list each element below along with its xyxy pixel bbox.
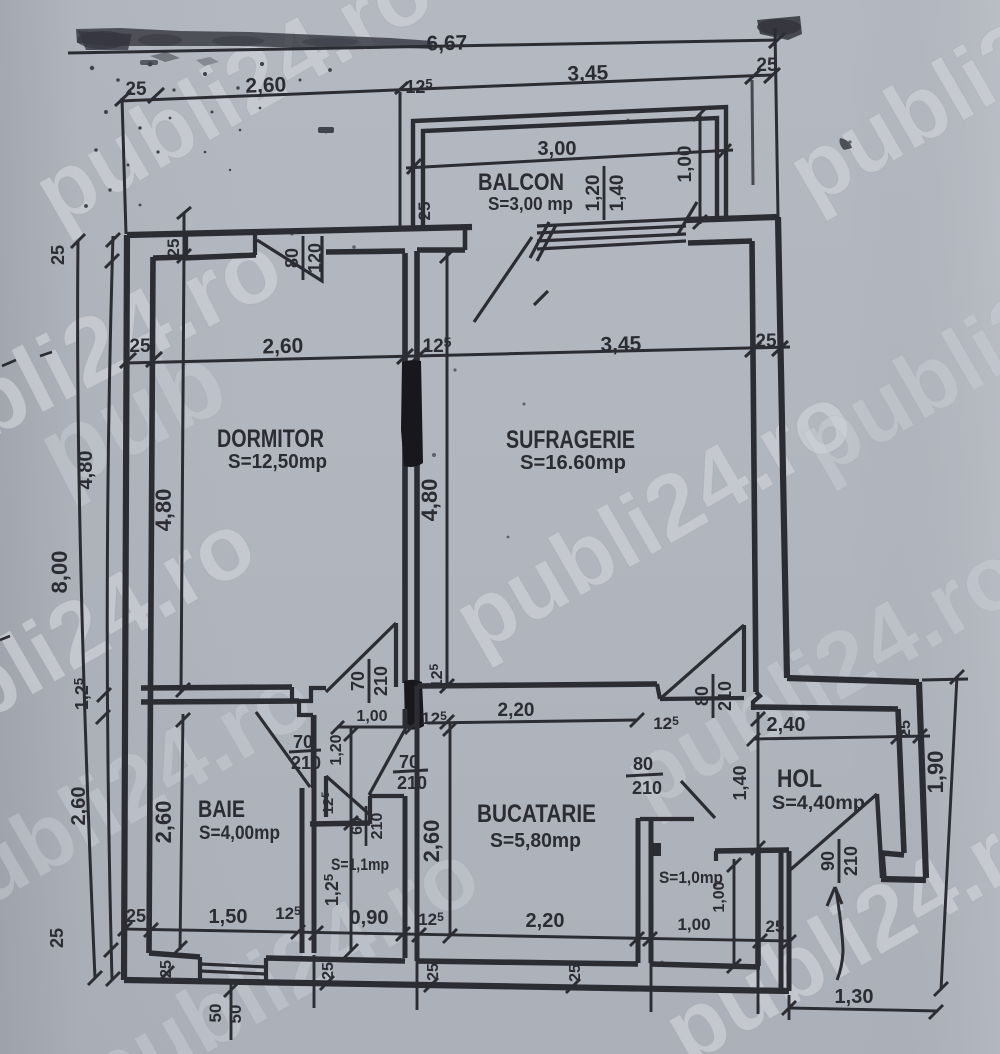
svg-text:70: 70 <box>293 732 313 752</box>
svg-text:210: 210 <box>841 846 861 876</box>
svg-text:S=3,00 mp: S=3,00 mp <box>488 194 573 214</box>
svg-text:120: 120 <box>305 243 325 273</box>
svg-text:BAIE: BAIE <box>198 796 245 823</box>
svg-text:3,45: 3,45 <box>600 332 642 356</box>
svg-text:1,00: 1,00 <box>677 915 710 934</box>
svg-text:25: 25 <box>755 331 777 352</box>
svg-text:1,00: 1,00 <box>356 708 387 725</box>
svg-text:25: 25 <box>425 963 442 981</box>
svg-text:4,80: 4,80 <box>417 479 442 522</box>
svg-text:25: 25 <box>129 336 151 357</box>
svg-text:4,80: 4,80 <box>151 489 176 532</box>
svg-text:S=5,80mp: S=5,80mp <box>490 830 581 852</box>
svg-text:1,00: 1,00 <box>675 146 696 183</box>
svg-text:25: 25 <box>48 245 68 265</box>
svg-text:80: 80 <box>692 686 712 706</box>
svg-text:50: 50 <box>226 1005 245 1024</box>
svg-text:BALCON: BALCON <box>478 169 564 196</box>
svg-text:0,90: 0,90 <box>350 907 389 929</box>
svg-text:1,20: 1,20 <box>328 734 345 765</box>
svg-text:S=1,0mp: S=1,0mp <box>659 868 723 887</box>
svg-text:2,60: 2,60 <box>245 73 287 97</box>
svg-text:S=4,40mp: S=4,40mp <box>772 793 865 814</box>
svg-text:1,20: 1,20 <box>583 175 604 212</box>
svg-text:70: 70 <box>399 752 419 772</box>
svg-text:25: 25 <box>47 928 67 948</box>
svg-text:S=16.60mp: S=16.60mp <box>520 452 626 474</box>
svg-text:1,50: 1,50 <box>209 906 248 928</box>
svg-text:25: 25 <box>897 720 914 738</box>
svg-text:70: 70 <box>348 671 368 691</box>
svg-text:210: 210 <box>397 773 427 793</box>
svg-text:8,00: 8,00 <box>47 551 72 594</box>
svg-text:210: 210 <box>291 753 321 773</box>
svg-text:2,60: 2,60 <box>151 801 176 844</box>
svg-text:S=4,00mp: S=4,00mp <box>199 823 280 844</box>
svg-text:25: 25 <box>756 55 778 76</box>
svg-text:90: 90 <box>818 851 838 871</box>
svg-text:2,20: 2,20 <box>498 700 535 721</box>
svg-text:4,80: 4,80 <box>75 451 97 490</box>
svg-text:1,90: 1,90 <box>923 751 948 794</box>
svg-text:2,20: 2,20 <box>526 910 565 932</box>
svg-text:80: 80 <box>282 248 302 268</box>
svg-text:S=1,1mp: S=1,1mp <box>331 855 389 874</box>
svg-text:210: 210 <box>715 681 735 711</box>
svg-text:HOL: HOL <box>777 765 822 793</box>
svg-text:BUCATARIE: BUCATARIE <box>477 800 596 828</box>
svg-text:50: 50 <box>206 1004 225 1023</box>
svg-text:25: 25 <box>567 964 584 982</box>
svg-text:2,60: 2,60 <box>68 787 90 826</box>
svg-text:2,60: 2,60 <box>419 820 444 863</box>
svg-text:3,00: 3,00 <box>538 138 577 160</box>
svg-text:6,67: 6,67 <box>426 31 467 55</box>
svg-text:1,40: 1,40 <box>730 765 750 800</box>
svg-text:DORMITOR: DORMITOR <box>217 425 324 453</box>
svg-text:25: 25 <box>125 79 147 100</box>
svg-text:210: 210 <box>632 778 662 798</box>
svg-text:25: 25 <box>126 906 146 926</box>
svg-text:2,60: 2,60 <box>262 334 303 358</box>
svg-text:60: 60 <box>349 817 366 835</box>
svg-text:1,40: 1,40 <box>607 175 628 212</box>
svg-text:S=12,50mp: S=12,50mp <box>228 451 327 473</box>
svg-text:SUFRAGERIE: SUFRAGERIE <box>506 426 635 454</box>
svg-text:2,40: 2,40 <box>767 714 806 736</box>
svg-text:25: 25 <box>766 917 785 936</box>
svg-text:3,45: 3,45 <box>567 61 609 85</box>
svg-text:80: 80 <box>633 754 653 774</box>
svg-text:210: 210 <box>369 813 386 840</box>
svg-text:210: 210 <box>371 666 391 696</box>
svg-text:1,30: 1,30 <box>835 986 874 1008</box>
